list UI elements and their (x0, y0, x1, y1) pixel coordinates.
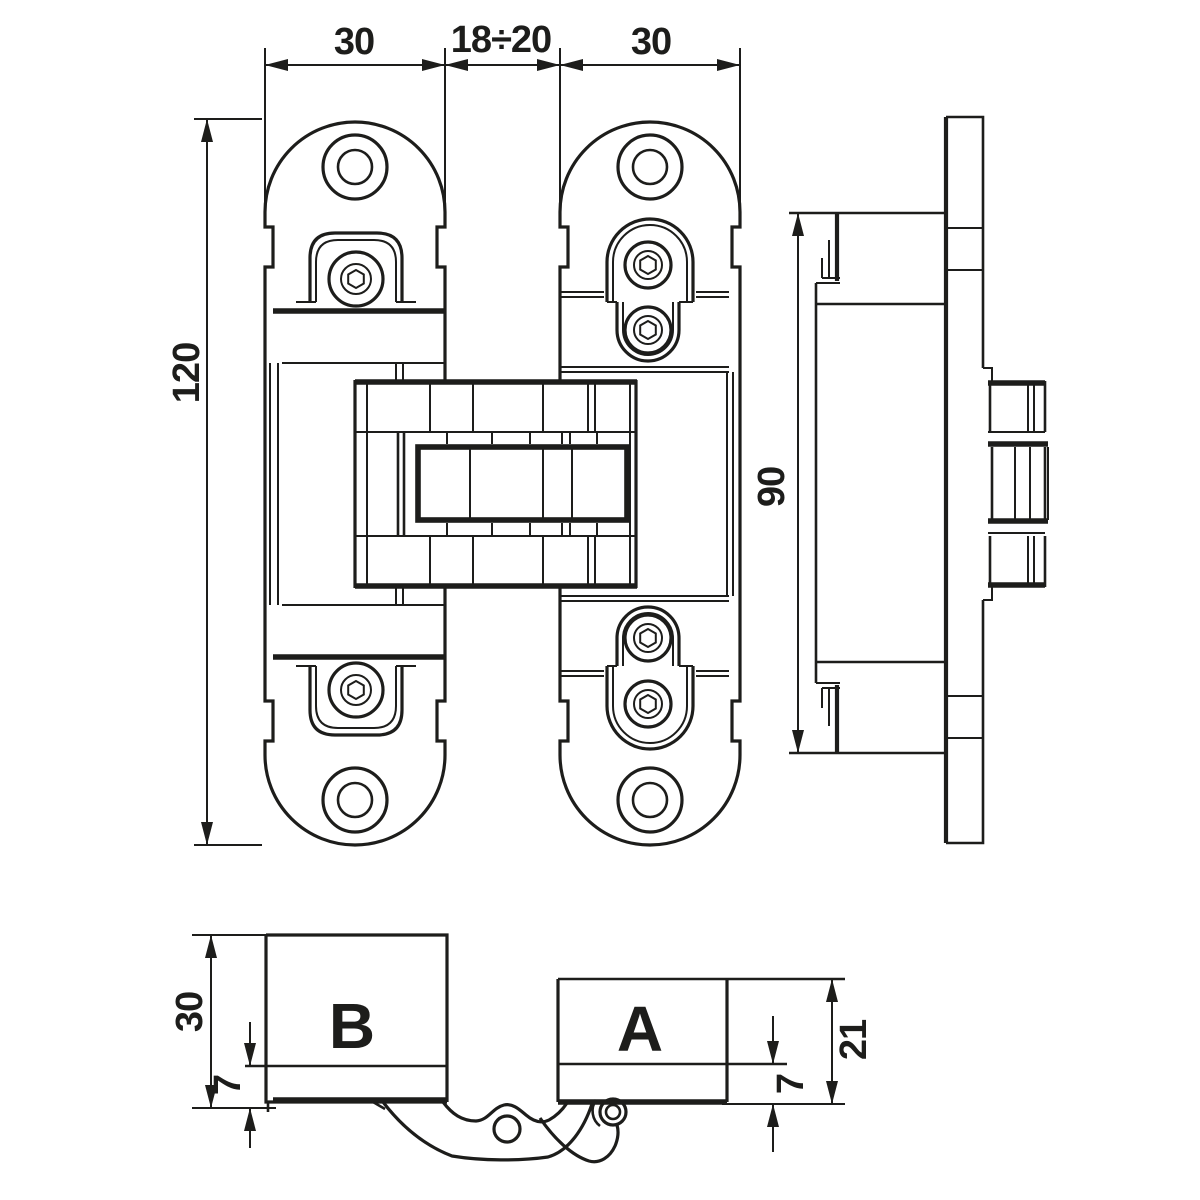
dim-left-recess-depth: 7 (207, 1075, 249, 1095)
side-dimension-height: 90 (751, 213, 804, 753)
upper-boss (273, 233, 445, 311)
arrowhead (265, 59, 288, 71)
plate-outline (560, 122, 740, 845)
arrowhead (244, 1043, 256, 1066)
hex-socket (348, 270, 364, 288)
screw-hole-bottom (618, 768, 682, 832)
mech-upper-band-dividers (430, 380, 595, 432)
open-view: B A 30 (169, 935, 875, 1162)
side-knuckle (983, 368, 1048, 600)
label-left-block: B (329, 990, 375, 1062)
dim-total-height: 120 (166, 343, 208, 403)
hex-socket (348, 681, 364, 699)
arrowhead (826, 979, 838, 1002)
screw-hole-top (618, 135, 682, 199)
dim-left-block-height: 30 (169, 992, 211, 1032)
knuckle-thick-bars (988, 444, 1048, 521)
leaf-outline (946, 117, 983, 843)
dim-plate-left-width: 30 (334, 21, 374, 63)
dim-plate-right-width: 30 (631, 21, 671, 63)
boss-shoulder-outer (607, 219, 693, 302)
center-link-block (418, 447, 627, 520)
knuckle-band-edges (990, 381, 1045, 587)
hex-socket (640, 629, 656, 647)
arrowhead (826, 1081, 838, 1104)
dim-right-recess-depth: 7 (770, 1074, 812, 1094)
dim-body-height: 90 (751, 467, 793, 507)
pivot-pin (494, 1116, 520, 1142)
adjust-screw-outer (625, 615, 671, 661)
boss-shoulder-outer (607, 666, 693, 749)
adjust-screw-outer (625, 242, 671, 288)
open-dimension-left-recess: 7 (207, 1022, 256, 1148)
arrowhead (767, 1104, 779, 1127)
arrowhead (205, 935, 217, 958)
adjust-screw-outer (625, 307, 671, 353)
screw-hole-bottom-inner (338, 783, 372, 817)
knuckle-center-edges (992, 447, 1045, 520)
front-view: 30 18÷20 30 120 (166, 19, 740, 845)
leaf-cross-lines (948, 228, 983, 738)
arrowhead (767, 1041, 779, 1064)
arrowhead (792, 213, 804, 236)
screw-hole-bottom (323, 768, 387, 832)
dim-right-block-height: 21 (833, 1019, 875, 1060)
adjust-screw-outer (329, 663, 383, 717)
knuckle-strip-lines (988, 432, 1045, 533)
right-plate (560, 122, 740, 845)
extension-line (194, 119, 262, 845)
side-body (789, 213, 946, 753)
drawing-canvas: 30 18÷20 30 120 (0, 0, 1200, 1200)
hinge-mechanism (355, 380, 637, 588)
adjust-screw-outer (625, 681, 671, 727)
center-link-dividers (470, 447, 572, 520)
linkage-arms (373, 1099, 626, 1162)
adjust-screw-ring (341, 675, 371, 705)
arrowhead (422, 59, 445, 71)
adjust-screw-ring (341, 264, 371, 294)
screw-hole-bottom-inner (633, 783, 667, 817)
screw-hole-top (323, 135, 387, 199)
hex-socket (640, 321, 656, 339)
screw-hole-top-inner (633, 150, 667, 184)
side-view: 90 (751, 117, 1048, 843)
hex-socket (640, 695, 656, 713)
arrowhead (792, 730, 804, 753)
arrowhead (560, 59, 583, 71)
arrowhead (201, 822, 213, 845)
knuckle-center-dividers (1015, 447, 1048, 520)
open-dimension-right-height: 21 (826, 979, 875, 1104)
lower-boss (273, 657, 445, 735)
arm-screw-inner (606, 1105, 620, 1119)
mech-lower-band-dividers (430, 536, 595, 588)
arrowhead (717, 59, 740, 71)
pivot-pin-lines (398, 432, 404, 536)
flange-inner-lines (816, 304, 946, 662)
linkage-upper-curve (443, 1102, 567, 1122)
hinge-technical-drawing: 30 18÷20 30 120 (0, 0, 1200, 1200)
mech-upper-strip-dividers (447, 432, 597, 444)
side-leaf-plate (946, 117, 983, 843)
label-right-block: A (617, 993, 663, 1065)
screw-hole-top-inner (338, 150, 372, 184)
adjust-screw-outer (329, 252, 383, 306)
dim-gap-width: 18÷20 (451, 19, 551, 61)
arrowhead (244, 1108, 256, 1131)
hex-socket (640, 256, 656, 274)
mech-lower-strip-dividers (447, 523, 597, 536)
front-dimension-height: 120 (166, 119, 262, 845)
front-dimension-top: 30 18÷20 30 (265, 19, 740, 212)
upper-boss (607, 219, 693, 361)
extension-line (265, 48, 740, 212)
lower-boss (607, 607, 693, 749)
block-b: B (245, 935, 447, 1112)
open-dimension-right-recess: 7 (767, 1016, 812, 1152)
band-lines (560, 292, 733, 676)
arrowhead (201, 119, 213, 142)
